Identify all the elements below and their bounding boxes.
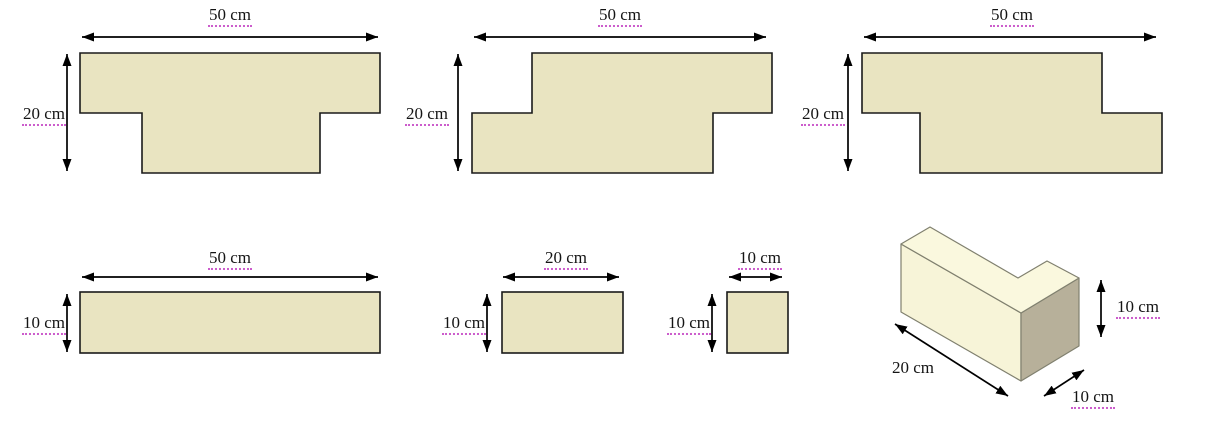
plank20-width-label: 20 cm [544, 248, 588, 270]
diagram-graphics [0, 0, 1213, 425]
step-left-height-label: 20 cm [405, 104, 449, 126]
square10-height-label: 10 cm [667, 313, 711, 335]
square-10x10-shape [727, 292, 788, 353]
block-length-label: 20 cm [891, 358, 935, 378]
step-right-width-label: 50 cm [990, 5, 1034, 27]
dimension-diagram-canvas: 50 cm 20 cm 50 cm 20 cm 50 cm 20 cm 50 c… [0, 0, 1213, 425]
step-left-width-label: 50 cm [598, 5, 642, 27]
step-profile-left-shape [472, 53, 772, 173]
plank-50x10-shape [80, 292, 380, 353]
step-right-height-label: 20 cm [801, 104, 845, 126]
plank50-height-label: 10 cm [22, 313, 66, 335]
plank-20x10-shape [502, 292, 623, 353]
block-depth-label: 10 cm [1071, 387, 1115, 409]
plank50-width-label: 50 cm [208, 248, 252, 270]
step-profile-right-shape [862, 53, 1162, 173]
tee-width-label: 50 cm [208, 5, 252, 27]
tee-profile-shape [80, 53, 380, 173]
plank20-height-label: 10 cm [442, 313, 486, 335]
block-height-label: 10 cm [1116, 297, 1160, 319]
tee-height-label: 20 cm [22, 104, 66, 126]
square10-width-label: 10 cm [738, 248, 782, 270]
